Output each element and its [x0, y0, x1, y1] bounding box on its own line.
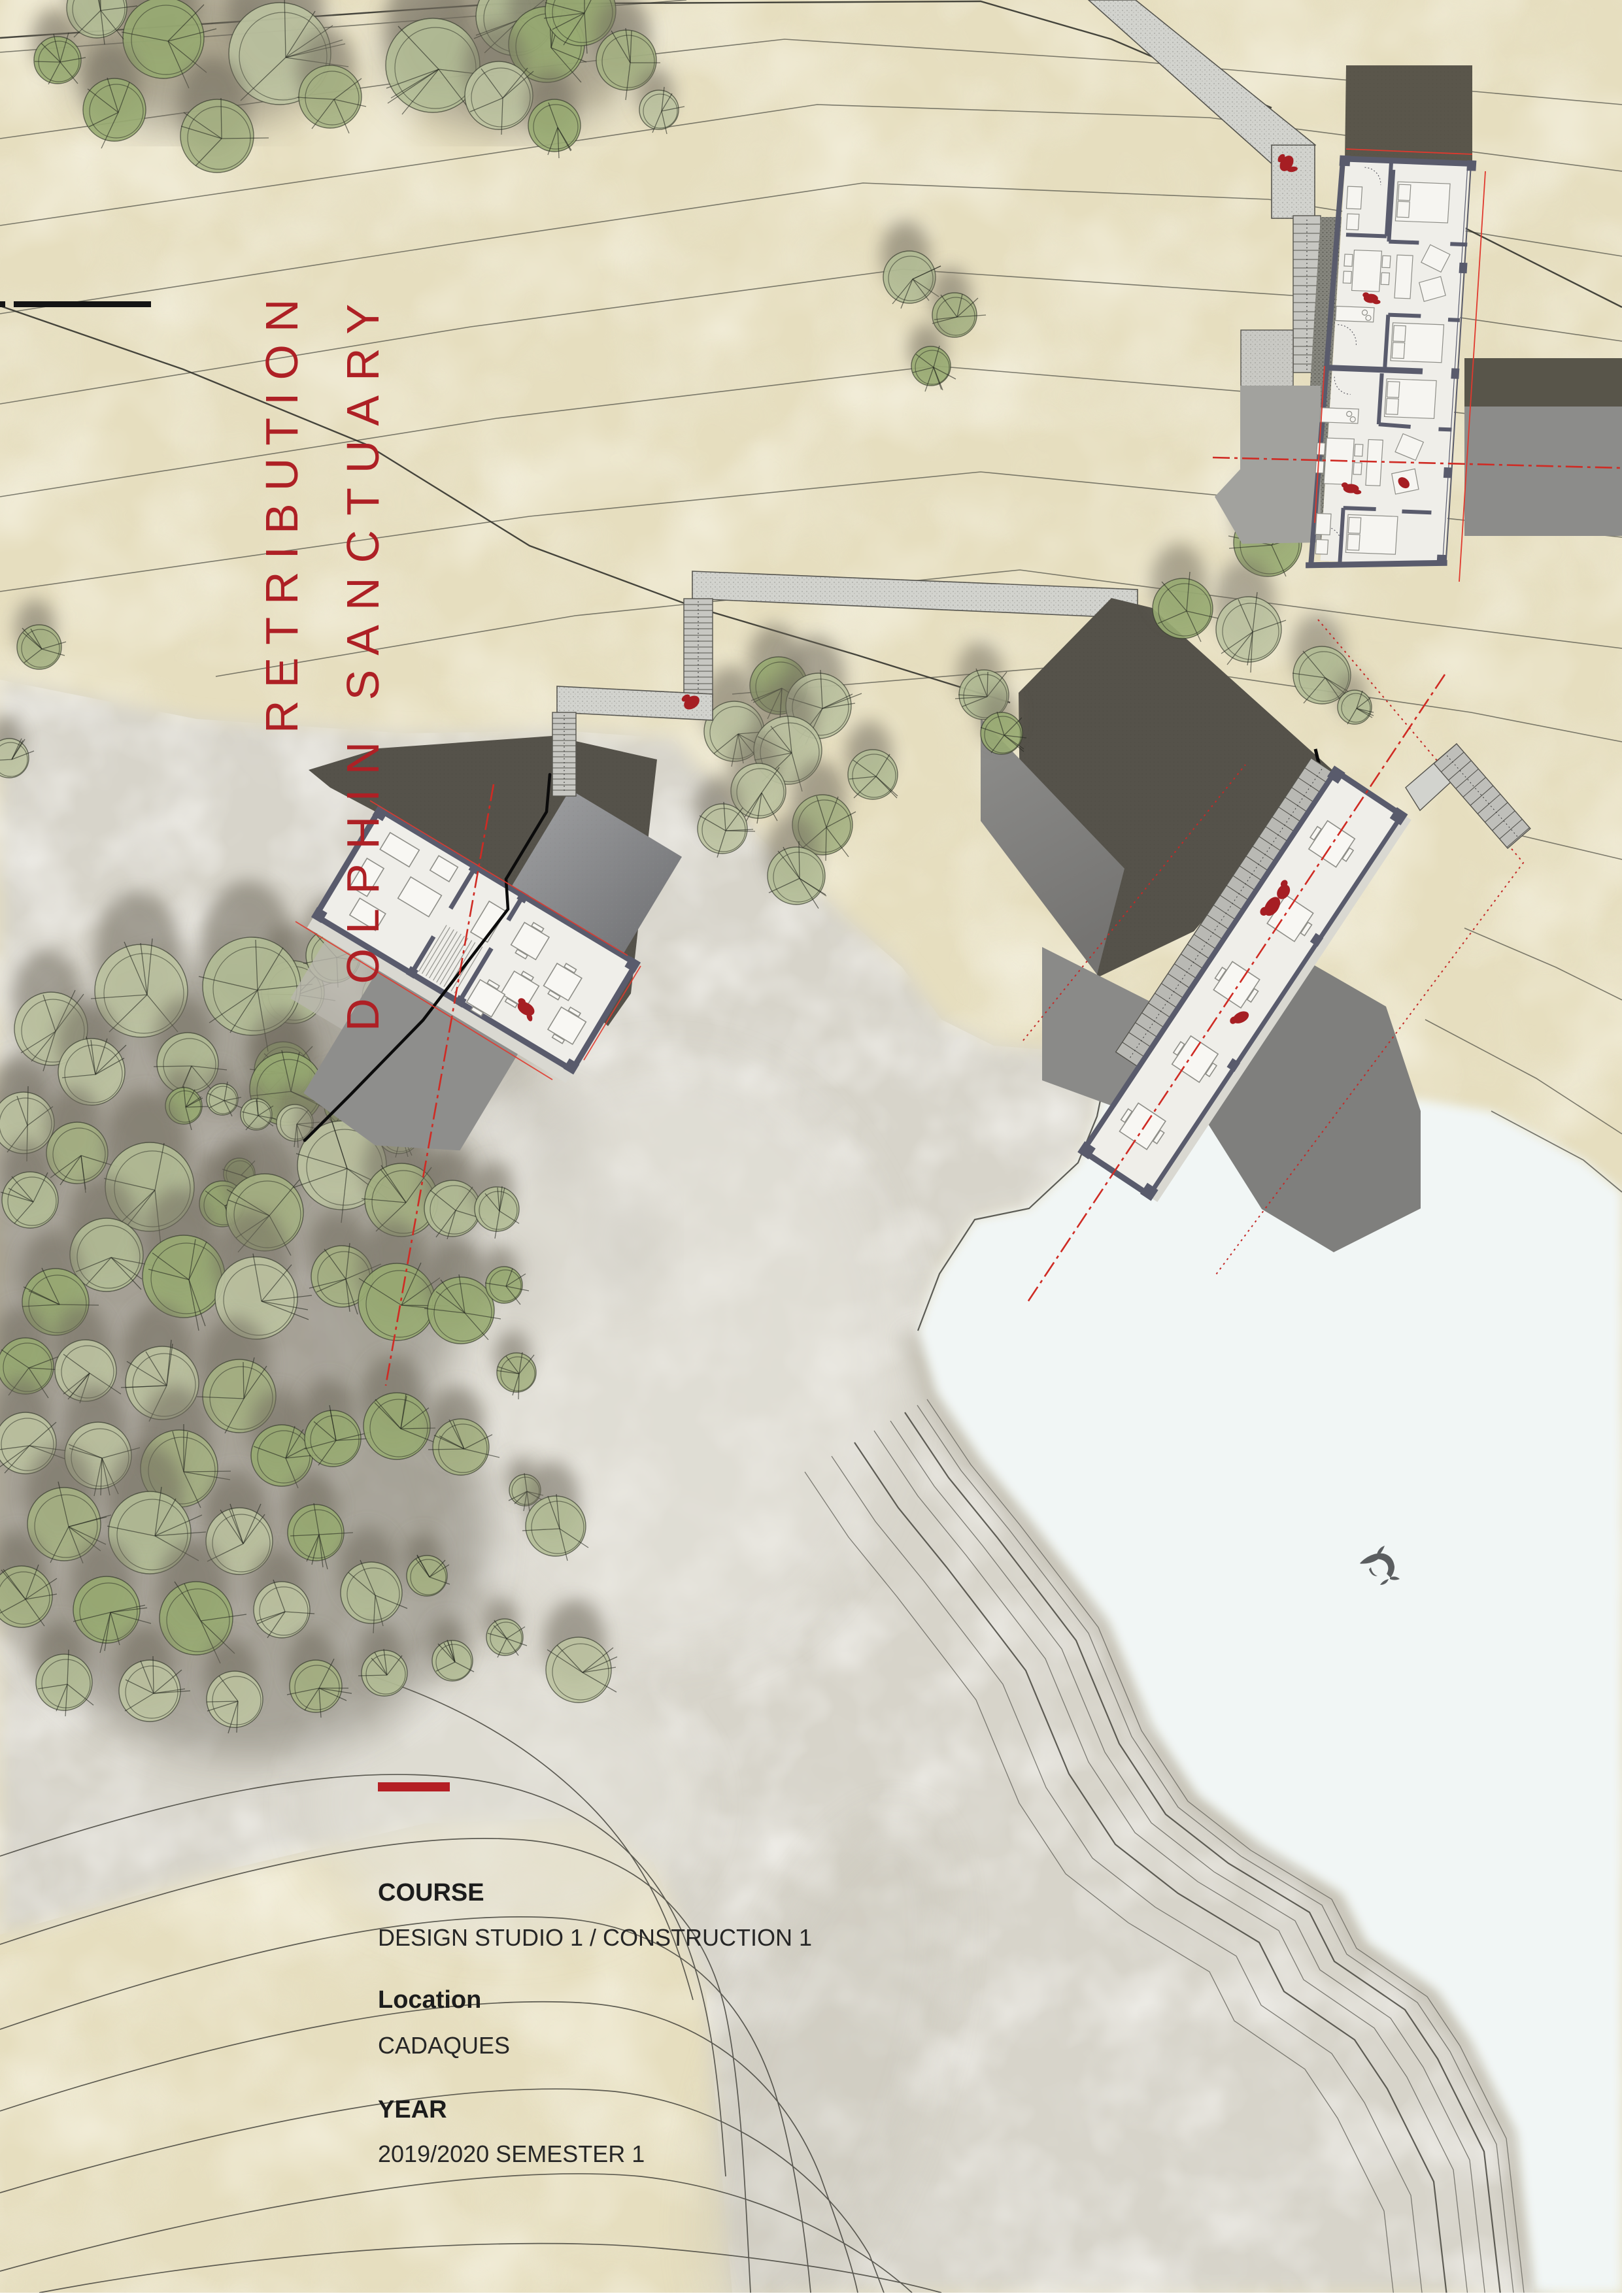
svg-text:YEAR: YEAR: [378, 2096, 447, 2123]
svg-text:2019/2020 SEMESTER 1: 2019/2020 SEMESTER 1: [378, 2140, 645, 2167]
svg-text:CADAQUES: CADAQUES: [378, 2032, 510, 2059]
svg-text:DESIGN STUDIO 1 / CONSTRUCTION: DESIGN STUDIO 1 / CONSTRUCTION 1: [378, 1924, 812, 1951]
svg-text:Location: Location: [378, 1986, 481, 2014]
svg-text:COURSE: COURSE: [378, 1879, 484, 1906]
svg-text:DOLPHIN SANCTUARY: DOLPHIN SANCTUARY: [337, 290, 388, 1031]
svg-text:RETRIBUTION: RETRIBUTION: [256, 287, 307, 733]
